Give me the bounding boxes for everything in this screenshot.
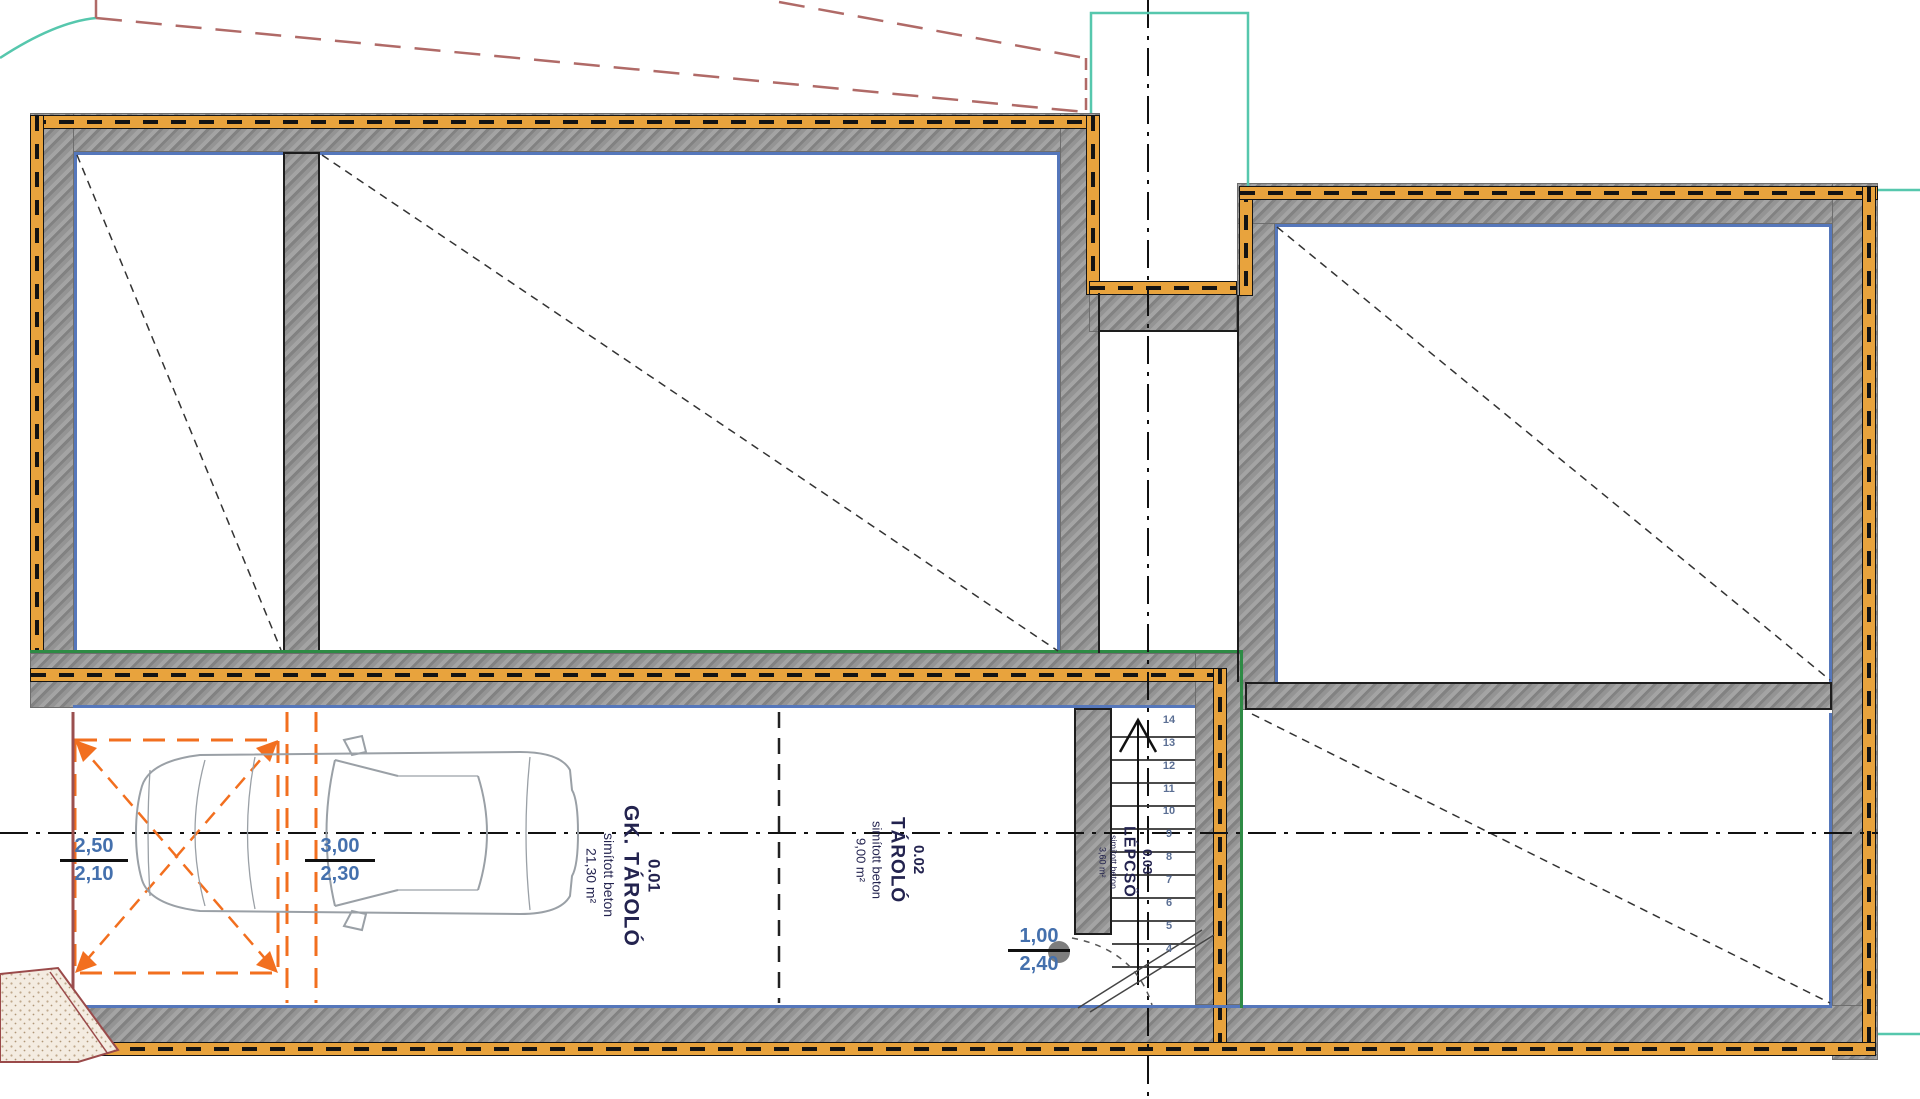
- dimension-height: 2,30: [321, 864, 360, 885]
- dimension-fraction-line: [1008, 949, 1070, 952]
- terrain-line-upper: [779, 2, 1085, 58]
- room-name: GK. TÁROLÓ: [617, 778, 643, 973]
- dimension-width: 1,00: [1020, 926, 1059, 947]
- room-label-stairs: 0.03 LÉPCSŐ simított beton 3,60 m²: [1096, 792, 1155, 932]
- room-name: TÁROLÓ: [885, 775, 909, 945]
- room-material: simított beton: [868, 775, 884, 945]
- dimension-width: 2,50: [75, 836, 114, 857]
- room-area: 3,60 m²: [1096, 792, 1107, 932]
- floor-plan-canvas: 2,50 2,10 3,00 2,30 1,00 2,40 0.01 GK. T…: [0, 0, 1920, 1099]
- room-material: simított beton: [600, 778, 618, 973]
- room-label-storage: 0.02 TÁROLÓ simított beton 9,00 m²: [852, 775, 927, 945]
- stair-tread-number: 6: [1156, 897, 1182, 909]
- retaining-wall: [0, 968, 118, 1062]
- stair-tread-number: 10: [1156, 805, 1182, 817]
- room-void-diagonal-left: [77, 155, 281, 650]
- dimension-width: 3,00: [321, 836, 360, 857]
- dimension-fraction-line: [305, 859, 375, 862]
- dimension-garage-opening: 3,00 2,30: [305, 836, 375, 885]
- stair-tread-number: 4: [1156, 943, 1182, 955]
- dimension-stair-door: 1,00 2,40: [1008, 926, 1070, 975]
- room-number: 0.02: [908, 775, 927, 945]
- room-void-diagonal-lowerright: [1252, 714, 1830, 1003]
- dimension-height: 2,40: [1020, 954, 1059, 975]
- boundary-curve-topleft: [0, 18, 96, 58]
- room-area: 21,30 m²: [582, 778, 600, 973]
- dimension-fraction-line: [60, 859, 128, 862]
- stair-tread-number: 7: [1156, 874, 1182, 886]
- room-void-diagonal-wing: [1277, 227, 1830, 680]
- room-area: 9,00 m²: [852, 775, 868, 945]
- stair-tread-number: 8: [1156, 851, 1182, 863]
- stair-tread-number: 13: [1156, 737, 1182, 749]
- door-swing-arc: [1072, 938, 1152, 1005]
- room-number: 0.01: [643, 778, 664, 973]
- stair-tread-number: 11: [1156, 783, 1182, 795]
- dimension-height: 2,10: [75, 864, 114, 885]
- stair-break-line-2: [1090, 935, 1214, 1012]
- stair-break-line: [1078, 930, 1202, 1008]
- stair-tread-number: 14: [1156, 714, 1182, 726]
- dimension-garage-door: 2,50 2,10: [60, 836, 128, 885]
- room-name: LÉPCSŐ: [1119, 792, 1139, 932]
- room-void-diagonal-big: [322, 155, 1058, 651]
- room-material: simított beton: [1107, 792, 1118, 932]
- linework-overlay: [0, 0, 1920, 1099]
- stair-tread-number: 9: [1156, 828, 1182, 840]
- room-label-garage: 0.01 GK. TÁROLÓ simított beton 21,30 m²: [582, 778, 665, 973]
- stair-tread-number: 12: [1156, 760, 1182, 772]
- room-number: 0.03: [1139, 792, 1155, 932]
- boundary-rect-notch: [1091, 13, 1248, 186]
- stair-tread-number: 5: [1156, 920, 1182, 932]
